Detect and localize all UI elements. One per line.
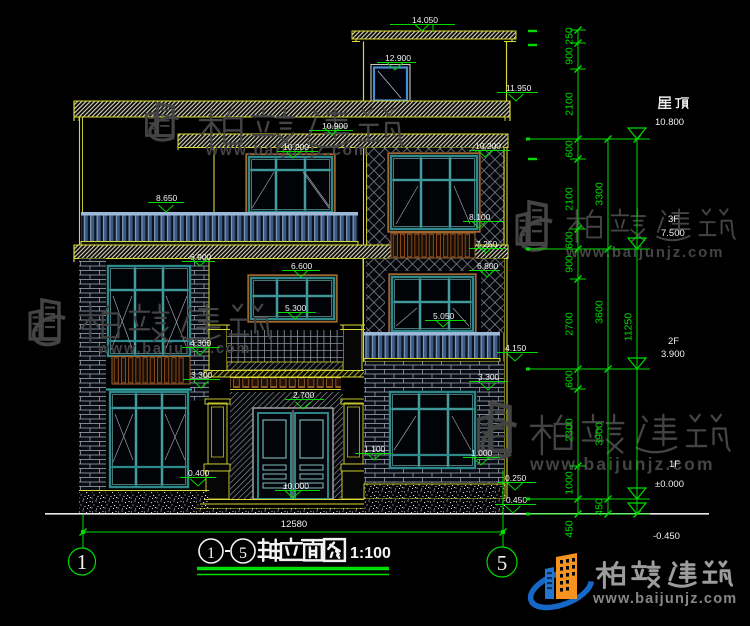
- svg-text:250: 250: [564, 27, 576, 45]
- svg-text:1:100: 1:100: [350, 545, 391, 562]
- svg-text:-0.450: -0.450: [653, 531, 680, 542]
- svg-text:12.900: 12.900: [385, 53, 411, 63]
- svg-text:2300: 2300: [564, 418, 576, 442]
- svg-text:www.baijunjz.com: www.baijunjz.com: [529, 454, 715, 474]
- svg-text:1: 1: [77, 550, 88, 574]
- svg-text:8.650: 8.650: [156, 193, 178, 203]
- svg-text:600: 600: [564, 231, 576, 249]
- svg-text:10.800: 10.800: [655, 117, 684, 128]
- svg-text:±0.000: ±0.000: [655, 479, 684, 490]
- svg-text:www.baijunjz.com: www.baijunjz.com: [592, 591, 737, 607]
- svg-text:-0.450: -0.450: [503, 495, 527, 505]
- svg-text:3300: 3300: [594, 182, 606, 206]
- svg-text:1000: 1000: [564, 471, 576, 495]
- svg-text:14.050: 14.050: [412, 15, 438, 25]
- svg-text:10.200: 10.200: [475, 141, 501, 151]
- svg-text:1: 1: [207, 545, 215, 562]
- svg-text:3900: 3900: [594, 422, 606, 446]
- svg-text:0.250: 0.250: [505, 473, 527, 483]
- svg-text:0.400: 0.400: [188, 468, 210, 478]
- svg-text:2100: 2100: [564, 92, 576, 116]
- svg-text:2100: 2100: [564, 187, 576, 211]
- svg-text:2F: 2F: [668, 336, 679, 347]
- svg-text:4.150: 4.150: [505, 343, 527, 353]
- svg-text:4.300: 4.300: [190, 338, 212, 348]
- svg-text:www.baijunjz.com: www.baijunjz.com: [565, 244, 724, 261]
- svg-text:2700: 2700: [564, 312, 576, 336]
- svg-text:5: 5: [239, 545, 247, 562]
- svg-text:2.700: 2.700: [293, 390, 315, 400]
- svg-text:5: 5: [497, 551, 508, 575]
- svg-text:3600: 3600: [594, 300, 606, 324]
- svg-text:3.900: 3.900: [661, 349, 685, 360]
- svg-text:10.200: 10.200: [283, 142, 309, 152]
- svg-text:600: 600: [564, 370, 576, 388]
- svg-text:1F: 1F: [669, 459, 680, 470]
- svg-text:www.baijunjz.com: www.baijunjz.com: [97, 341, 251, 357]
- svg-text:12580: 12580: [281, 519, 307, 530]
- svg-text:7.500: 7.500: [661, 228, 685, 239]
- svg-text:900: 900: [564, 255, 576, 273]
- svg-text:450: 450: [594, 498, 606, 516]
- svg-text:8.100: 8.100: [469, 212, 491, 222]
- svg-text:3.300: 3.300: [478, 372, 500, 382]
- svg-text:7.250: 7.250: [476, 239, 498, 249]
- svg-text:11.950: 11.950: [506, 83, 532, 93]
- svg-text:3F: 3F: [668, 214, 679, 225]
- svg-text:900: 900: [564, 47, 576, 65]
- svg-text:600: 600: [564, 140, 576, 158]
- svg-text:6.800: 6.800: [477, 261, 499, 271]
- svg-text:3.300: 3.300: [191, 370, 213, 380]
- svg-text:11250: 11250: [623, 313, 635, 342]
- svg-text:6.900: 6.900: [190, 252, 212, 262]
- svg-text:450: 450: [564, 520, 576, 538]
- svg-text:6.600: 6.600: [291, 261, 313, 271]
- svg-text:5.050: 5.050: [433, 311, 455, 321]
- svg-text:1.000: 1.000: [471, 448, 493, 458]
- svg-text:±0.000: ±0.000: [283, 481, 309, 491]
- svg-text:5.300: 5.300: [285, 303, 307, 313]
- svg-text:1.100: 1.100: [364, 444, 386, 454]
